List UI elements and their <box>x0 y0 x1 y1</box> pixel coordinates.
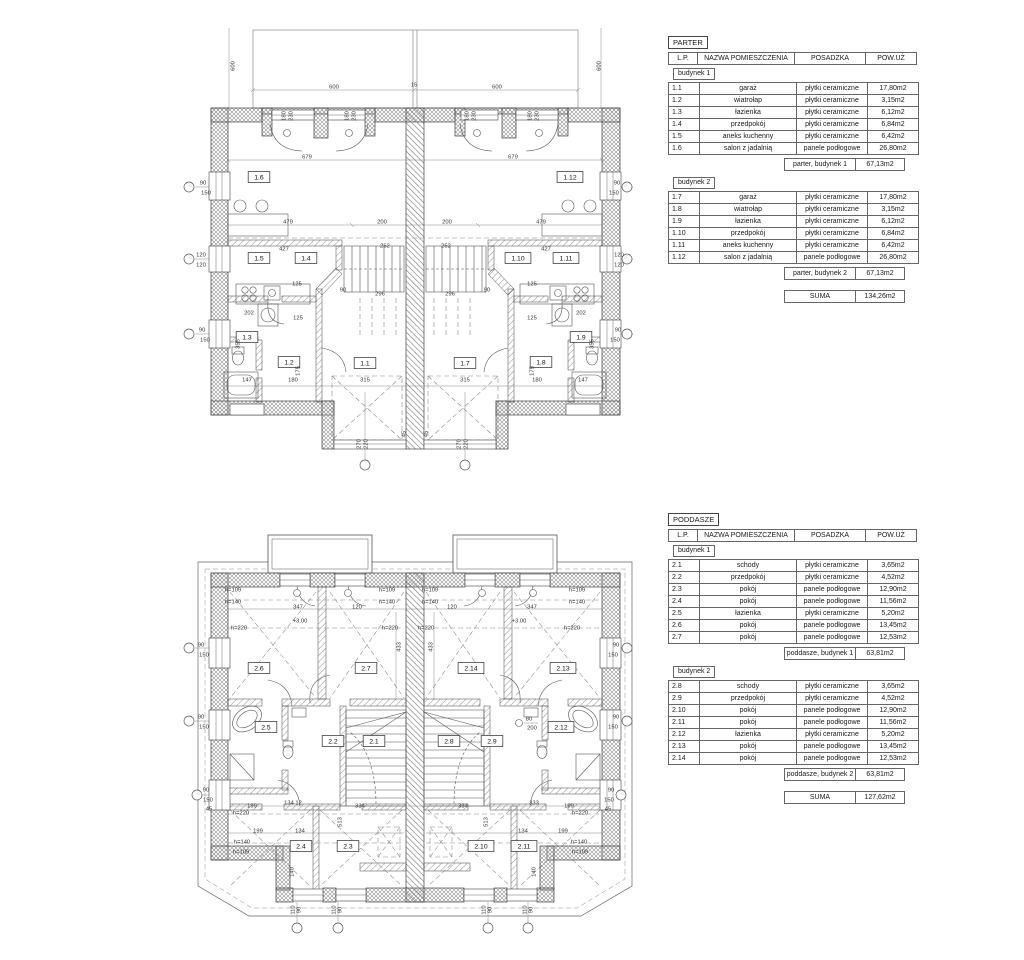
cell: 13,45m2 <box>868 740 919 752</box>
table-row: 2.6pokójpanele podłogowe13,45m2 <box>669 619 919 631</box>
axis-marker-icon <box>622 182 632 192</box>
dimension-label: 120 <box>614 263 624 269</box>
cell: 2.6 <box>669 619 700 631</box>
dimension-label: 220 <box>364 439 370 449</box>
cell: łazienka <box>700 607 797 619</box>
dimension-label: 334 <box>458 804 468 810</box>
dimension-label: 90 <box>200 181 206 187</box>
dimension-label: 90 <box>488 907 494 913</box>
column-header: POSADZKA <box>795 52 866 64</box>
dimension-label: 134 <box>295 829 305 835</box>
dimension-label: h=220 <box>572 811 588 817</box>
cell: pokój <box>700 631 797 643</box>
dimension-label: 427 <box>541 247 551 253</box>
axis-marker-icon <box>184 254 194 264</box>
dimension-label: 347 <box>527 605 537 611</box>
room-label: 1.1 <box>360 360 370 367</box>
dimension-label: 120 <box>352 605 362 611</box>
dimension-label: 433 <box>429 642 435 652</box>
dimension-label: 230 <box>535 111 541 121</box>
cell: 12,90m2 <box>868 583 919 595</box>
door-marker-icon <box>516 720 523 727</box>
schedule-rows: 2.8schodypłytki ceramiczne3,65m22.9przed… <box>668 680 919 765</box>
cell: łazienka <box>700 106 797 118</box>
dimension-label: 125 <box>527 282 537 288</box>
room-label: 2.9 <box>487 738 497 745</box>
schedule-rows: 2.1schodypłytki ceramiczne3,65m22.2przed… <box>668 559 919 644</box>
cell: panele podłogowe <box>797 619 868 631</box>
axis-marker-icon <box>184 716 194 726</box>
dimension-label: 427 <box>279 247 289 253</box>
cell: 1.11 <box>669 239 700 251</box>
door-marker-icon <box>346 130 353 137</box>
cell: 6,84m2 <box>868 118 919 130</box>
dimension-label: 150 <box>608 725 618 731</box>
cell: 2.1 <box>669 559 700 571</box>
dimension-label: 150 <box>203 798 213 804</box>
room-label: 1.8 <box>536 359 546 366</box>
cell: panele podłogowe <box>797 631 868 643</box>
cell: płytki ceramiczne <box>797 106 868 118</box>
dimension-label: 90 <box>198 715 204 721</box>
door-marker-icon <box>294 590 301 597</box>
total-row: SUMA127,62m2 <box>784 791 905 804</box>
table-row: 1.8wiatrołappłytki ceramiczne3,15m2 <box>669 203 919 215</box>
dimension-label: 433 <box>397 642 403 652</box>
schedule-rows: 1.7garażpłytki ceramiczne17,80m21.8wiatr… <box>668 191 919 264</box>
cell: aneks kuchenny <box>700 130 797 142</box>
dimension-label: 150 <box>199 653 209 659</box>
cell: 6,42m2 <box>868 239 919 251</box>
dimension-label: 200 <box>442 220 452 226</box>
cell: przedpokój <box>700 118 797 130</box>
cell: pokój <box>700 583 797 595</box>
dimension-label: h=140 <box>225 600 241 606</box>
cell: 2.8 <box>669 680 700 692</box>
axis-marker-icon <box>460 460 470 470</box>
cell: pokój <box>700 704 797 716</box>
cell: 26,80m2 <box>868 142 919 154</box>
column-header: L.P. <box>669 52 698 64</box>
dimension-label: 600 <box>597 61 603 71</box>
room-label: 1.11 <box>560 255 573 262</box>
room-label: 2.1 <box>369 738 379 745</box>
drawing-sheet: 1.61.121.51.41.101.111.31.91.21.81.11.76… <box>0 0 1024 960</box>
dimension-label: 679 <box>508 155 518 161</box>
room-label: 1.2 <box>284 359 294 366</box>
column-header: L.P. <box>669 529 698 541</box>
cell: płytki ceramiczne <box>797 130 868 142</box>
room-label: 2.5 <box>261 724 271 731</box>
door-marker-icon <box>284 130 291 137</box>
cell: 26,80m2 <box>868 251 919 263</box>
room-label: 2.14 <box>464 665 477 672</box>
dimension-label: h=220 <box>564 626 580 632</box>
axis-marker-icon <box>184 182 194 192</box>
cell: 6,12m2 <box>868 106 919 118</box>
cell: 2.3 <box>669 583 700 595</box>
cell: 2.9 <box>669 692 700 704</box>
cell: płytki ceramiczne <box>797 607 868 619</box>
table-row: 2.14pokójpanele podłogowe12,53m2 <box>669 752 919 764</box>
cell: 4,52m2 <box>868 692 919 704</box>
dimension-label: 90 <box>199 328 205 334</box>
room-label: 2.13 <box>556 665 569 672</box>
dimension-label: 180 <box>528 111 534 121</box>
cell: płytki ceramiczne <box>797 215 868 227</box>
dimension-label: 90 <box>198 643 204 649</box>
table-row: 1.5aneks kuchennypłytki ceramiczne6,42m2 <box>669 130 919 142</box>
dimension-label: 125 <box>527 316 537 322</box>
dimension-label: 45 <box>206 807 212 813</box>
dimension-label: 140 <box>532 867 538 877</box>
cell: 13,45m2 <box>868 619 919 631</box>
cell: 1.5 <box>669 130 700 142</box>
cell: płytki ceramiczne <box>797 82 868 94</box>
table-row: 2.8schodypłytki ceramiczne3,65m2 <box>669 680 919 692</box>
cell: 5,20m2 <box>868 728 919 740</box>
table-row: 2.12łazienkapłytki ceramiczne5,20m2 <box>669 728 919 740</box>
cell: łazienka <box>700 728 797 740</box>
table-row: 1.1garażpłytki ceramiczne17,80m2 <box>669 82 919 94</box>
cell: płytki ceramiczne <box>797 227 868 239</box>
dimension-label: 125 <box>293 316 303 322</box>
dimension-label: 334 <box>355 804 365 810</box>
dimension-label: 90 <box>613 715 619 721</box>
cell: 11,56m2 <box>868 716 919 728</box>
dimension-label: 230 <box>289 111 295 121</box>
schedule-table-parter: PARTERL.P.NAZWA POMIESZCZENIAPOSADZKAPOW… <box>668 36 905 306</box>
dimension-label: 90 <box>614 181 620 187</box>
parter-terrace <box>253 30 578 108</box>
dimension-label: h=140 <box>379 600 395 606</box>
dimension-label: 15 <box>411 83 417 89</box>
room-label: 1.4 <box>301 255 311 262</box>
cell: 4,52m2 <box>868 571 919 583</box>
cell: panele podłogowe <box>797 595 868 607</box>
dimension-label: 315 <box>460 378 470 384</box>
cell: panele podłogowe <box>797 740 868 752</box>
dimension-label: 252 <box>441 244 451 250</box>
dimension-label: 80 <box>526 717 532 723</box>
dimension-label: 120 <box>196 253 206 259</box>
cell: łazienka <box>700 215 797 227</box>
cell: 3,65m2 <box>868 559 919 571</box>
dimension-label: 199 <box>247 804 257 810</box>
subtotal-row: poddasze, budynek 263,81m2 <box>784 768 905 781</box>
dimension-label: 202 <box>244 311 254 317</box>
cell: płytki ceramiczne <box>797 239 868 251</box>
axis-marker-icon <box>616 790 626 800</box>
dimension-label: 45 <box>402 431 408 437</box>
cell: 1.2 <box>669 94 700 106</box>
dimension-label: 270 <box>457 439 463 449</box>
dimension-label: 150 <box>200 338 210 344</box>
dimension-label: +3.00 <box>512 619 527 625</box>
dimension-label: 175 <box>530 366 536 376</box>
door-marker-icon <box>536 130 543 137</box>
table-row: 2.11pokójpanele podłogowe11,56m2 <box>669 716 919 728</box>
dimension-label: h=109 <box>233 850 249 856</box>
dimension-label: 315 <box>360 378 370 384</box>
dimension-label: 220 <box>464 439 470 449</box>
dimension-label: h=140 <box>571 840 587 846</box>
dimension-label: 230 <box>352 111 358 121</box>
cell: 12,53m2 <box>868 752 919 764</box>
schedule-header: L.P.NAZWA POMIESZCZENIAPOSADZKAPOW.UŻ <box>668 52 917 65</box>
cell: 3,15m2 <box>868 94 919 106</box>
dimension-label: h=109 <box>569 588 585 594</box>
cell: 12,90m2 <box>868 704 919 716</box>
column-header: NAZWA POMIESZCZENIA <box>698 529 795 541</box>
room-label: 2.7 <box>361 665 371 672</box>
room-label: 2.6 <box>254 665 264 672</box>
cell: panele podłogowe <box>797 752 868 764</box>
table-row: 2.7pokójpanele podłogowe12,53m2 <box>669 631 919 643</box>
cell: 17,80m2 <box>868 191 919 203</box>
cell: płytki ceramiczne <box>797 559 868 571</box>
room-label: 2.4 <box>296 843 306 850</box>
dimension-label: h=109 <box>379 588 395 594</box>
table-row: 2.1schodypłytki ceramiczne3,65m2 <box>669 559 919 571</box>
dimension-label: 333 <box>529 801 539 807</box>
dimension-label: +3.00 <box>293 619 308 625</box>
cell: 1.10 <box>669 227 700 239</box>
cell: panele podłogowe <box>797 142 868 154</box>
table-row: 2.3pokójpanele podłogowe12,90m2 <box>669 583 919 595</box>
cell: płytki ceramiczne <box>797 191 868 203</box>
floor-title: PODDASZE <box>668 513 719 526</box>
cell: wiatrołap <box>700 94 797 106</box>
dimension-label: 180 <box>288 378 298 384</box>
dimension-label: h=220 <box>382 626 398 632</box>
floor-title: PARTER <box>668 36 708 49</box>
table-row: 1.6salon z jadalniąpanele podłogowe26,80… <box>669 142 919 154</box>
dimension-label: h=109 <box>422 588 438 594</box>
dimension-label: 120 <box>196 263 206 269</box>
subtotal-row: parter, budynek 167,13m2 <box>784 158 905 171</box>
dimension-label: 202 <box>576 311 586 317</box>
cell: 1.3 <box>669 106 700 118</box>
dimension-label: h=220 <box>231 626 247 632</box>
dimension-label: h=140 <box>422 600 438 606</box>
dimension-label: 200 <box>377 220 387 226</box>
table-row: 2.9przedpokójpłytki ceramiczne4,52m2 <box>669 692 919 704</box>
door-marker-icon <box>474 130 481 137</box>
axis-marker-icon <box>292 923 302 933</box>
dimension-label: 270 <box>357 439 363 449</box>
dimension-label: 252 <box>380 244 390 250</box>
table-row: 1.2wiatrołappłytki ceramiczne3,15m2 <box>669 94 919 106</box>
axis-marker-icon <box>622 254 632 264</box>
axis-marker-icon <box>523 923 533 933</box>
room-label: 1.9 <box>576 334 586 341</box>
poddasze-party-wall <box>406 573 424 902</box>
cell: płytki ceramiczne <box>797 203 868 215</box>
dimension-label: h=109 <box>225 588 241 594</box>
dimension-label: 150 <box>610 338 620 344</box>
dimension-label: 199 <box>558 829 568 835</box>
dimension-label: 90 <box>608 788 614 794</box>
axis-marker-icon <box>622 329 632 339</box>
dimension-label: 134 <box>518 829 528 835</box>
total-row: SUMA134,26m2 <box>784 290 905 303</box>
dimension-label: 90 <box>297 907 303 913</box>
cell: 2.7 <box>669 631 700 643</box>
dimension-label: 479 <box>536 220 546 226</box>
cell: schody <box>700 559 797 571</box>
axis-marker-icon <box>184 329 194 339</box>
dimension-label: 600 <box>231 61 237 71</box>
poddasze-dormers <box>268 535 557 573</box>
axis-marker-icon <box>333 923 343 933</box>
room-label: 1.3 <box>242 334 252 341</box>
dimension-label: 90 <box>340 288 346 294</box>
door-marker-icon <box>479 590 486 597</box>
dimension-label: 147 <box>578 378 588 384</box>
table-row: 2.4pokójpanele podłogowe11,56m2 <box>669 595 919 607</box>
cell: płytki ceramiczne <box>797 728 868 740</box>
group-label: budynek 1 <box>673 68 715 80</box>
cell: 1.4 <box>669 118 700 130</box>
table-row: 2.10pokójpanele podłogowe12,90m2 <box>669 704 919 716</box>
room-label: 2.8 <box>444 738 454 745</box>
cell: 6,42m2 <box>868 130 919 142</box>
table-row: 1.3łazienkapłytki ceramiczne6,12m2 <box>669 106 919 118</box>
dimension-label: 150 <box>608 653 618 659</box>
room-label: 2.2 <box>328 738 338 745</box>
subtotal-row: poddasze, budynek 163,81m2 <box>784 647 905 660</box>
table-row: 1.4przedpokójpłytki ceramiczne6,84m2 <box>669 118 919 130</box>
room-label: 2.11 <box>518 843 531 850</box>
dimension-label: 90 <box>613 643 619 649</box>
cell: pokój <box>700 752 797 764</box>
cell: garaż <box>700 82 797 94</box>
table-row: 2.5łazienkapłytki ceramiczne5,20m2 <box>669 607 919 619</box>
table-row: 1.10przedpokójpłytki ceramiczne6,84m2 <box>669 227 919 239</box>
dimension-label: 90 <box>203 788 209 794</box>
cell: garaż <box>700 191 797 203</box>
cell: 2.5 <box>669 607 700 619</box>
dimension-label: 180 <box>465 111 471 121</box>
cell: panele podłogowe <box>797 583 868 595</box>
cell: 2.2 <box>669 571 700 583</box>
dimension-label: 150 <box>604 798 614 804</box>
group-label: budynek 2 <box>673 177 715 189</box>
cell: pokój <box>700 595 797 607</box>
parter-party-wall <box>406 108 424 449</box>
table-row: 2.2przedpokójpłytki ceramiczne4,52m2 <box>669 571 919 583</box>
dimension-label: 120 <box>447 605 457 611</box>
cell: przedpokój <box>700 692 797 704</box>
cell: 1.8 <box>669 203 700 215</box>
cell: panele podłogowe <box>797 251 868 263</box>
cell: 1.6 <box>669 142 700 154</box>
dimension-label: 355 <box>590 339 596 349</box>
column-header: POW.UŻ <box>866 52 917 64</box>
dimension-label: h=140 <box>569 600 585 606</box>
room-label: 1.5 <box>254 255 264 262</box>
dimension-label: 600 <box>329 85 339 91</box>
dimension-label: 347 <box>293 605 303 611</box>
dimension-label: 513 <box>484 817 490 827</box>
cell: 2.12 <box>669 728 700 740</box>
cell: 17,80m2 <box>868 82 919 94</box>
cell: 6,12m2 <box>868 215 919 227</box>
dimension-label: 199 <box>253 829 263 835</box>
dimension-label: h=140 <box>234 840 250 846</box>
schedule-header: L.P.NAZWA POMIESZCZENIAPOSADZKAPOW.UŻ <box>668 529 917 542</box>
cell: płytki ceramiczne <box>797 692 868 704</box>
dimension-label: h=109 <box>572 850 588 856</box>
cell: płytki ceramiczne <box>797 94 868 106</box>
cell: płytki ceramiczne <box>797 680 868 692</box>
dimension-label: 479 <box>283 220 293 226</box>
dimension-label: 679 <box>302 155 312 161</box>
table-row: 1.12salon z jadalniąpanele podłogowe26,8… <box>669 251 919 263</box>
cell: 2.14 <box>669 752 700 764</box>
dimension-label: 45 <box>605 807 611 813</box>
table-row: 1.11aneks kuchennypłytki ceramiczne6,42m… <box>669 239 919 251</box>
room-label: 2.12 <box>554 724 567 731</box>
cell: 3,65m2 <box>868 680 919 692</box>
dimension-label: 600 <box>492 85 502 91</box>
cell: 1.12 <box>669 251 700 263</box>
room-label: 1.6 <box>254 174 264 181</box>
dimension-label: 90 <box>484 288 490 294</box>
axis-marker-icon <box>192 790 202 800</box>
table-row: 2.13pokójpanele podłogowe13,45m2 <box>669 740 919 752</box>
cell: pokój <box>700 740 797 752</box>
table-row: 1.9łazienkapłytki ceramiczne6,12m2 <box>669 215 919 227</box>
dimension-label: h=220 <box>233 811 249 817</box>
dimension-label: 125 <box>292 282 302 288</box>
cell: płytki ceramiczne <box>797 571 868 583</box>
cell: pokój <box>700 716 797 728</box>
dimension-label: 147 <box>242 378 252 384</box>
column-header: NAZWA POMIESZCZENIA <box>698 52 795 64</box>
schedule-rows: 1.1garażpłytki ceramiczne17,80m21.2wiatr… <box>668 82 919 155</box>
cell: 2.11 <box>669 716 700 728</box>
cell: 1.7 <box>669 191 700 203</box>
dimension-label: 200 <box>527 726 537 732</box>
dimension-label: 90 <box>529 907 535 913</box>
cell: 11,56m2 <box>868 595 919 607</box>
dimension-label: 296 <box>445 292 455 298</box>
cell: 2.10 <box>669 704 700 716</box>
axis-marker-icon <box>483 923 493 933</box>
dimension-label: 175 <box>296 366 302 376</box>
cell: przedpokój <box>700 571 797 583</box>
cell: 6,84m2 <box>868 227 919 239</box>
cell: 12,53m2 <box>868 631 919 643</box>
dimension-label: 134 12 <box>284 801 302 807</box>
door-marker-icon <box>345 590 352 597</box>
room-label: 2.3 <box>343 843 353 850</box>
dimension-label: 150 <box>609 191 619 197</box>
room-label: 1.12 <box>563 174 576 181</box>
dimension-label: 230 <box>472 111 478 121</box>
cell: salon z jadalnią <box>700 142 797 154</box>
cell: 2.13 <box>669 740 700 752</box>
door-marker-icon <box>530 590 537 597</box>
cell: 5,20m2 <box>868 607 919 619</box>
cell: salon z jadalnią <box>700 251 797 263</box>
cell: przedpokój <box>700 227 797 239</box>
column-header: POSADZKA <box>795 529 866 541</box>
cell: 1.1 <box>669 82 700 94</box>
group-label: budynek 2 <box>673 666 715 678</box>
